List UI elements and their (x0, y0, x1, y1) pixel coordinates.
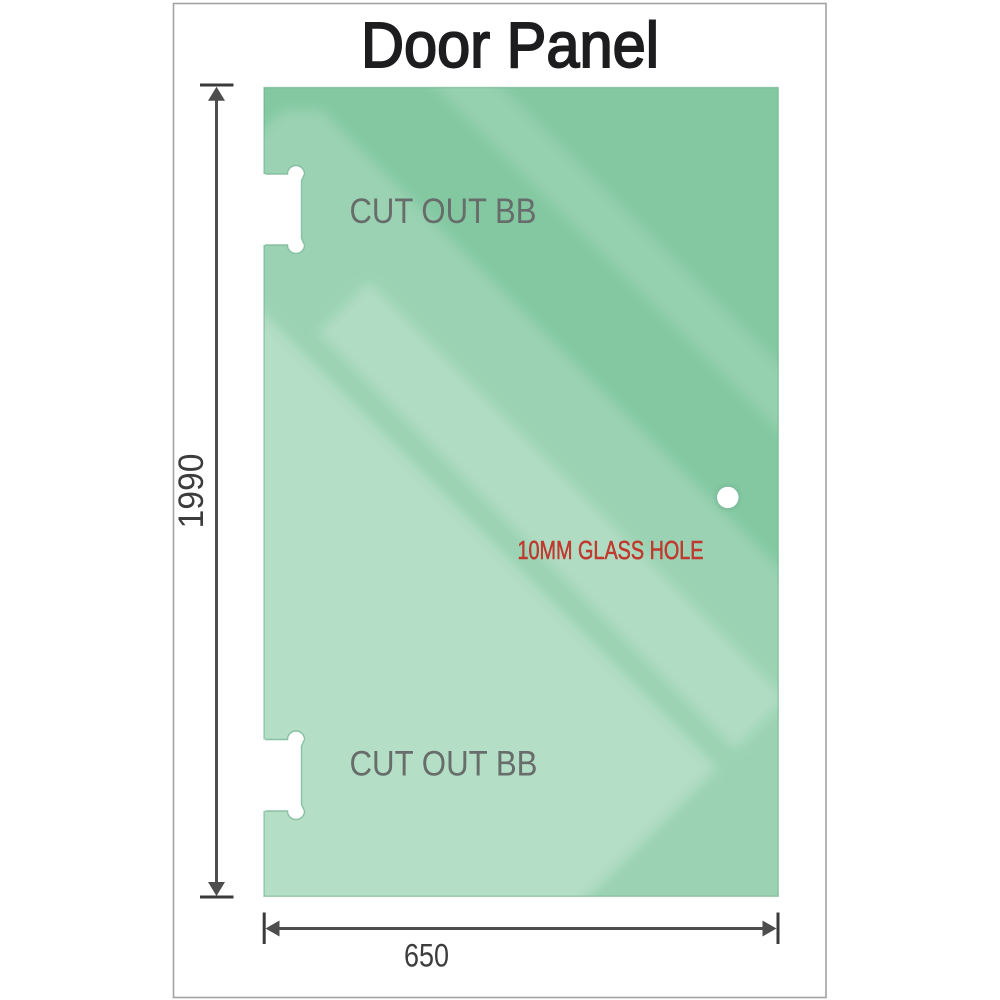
svg-text:CUT OUT BB: CUT OUT BB (350, 192, 537, 231)
svg-text:1990: 1990 (172, 454, 211, 529)
svg-text:CUT OUT BB: CUT OUT BB (350, 745, 538, 784)
svg-text:Door Panel: Door Panel (361, 9, 659, 81)
svg-text:10MM GLASS HOLE: 10MM GLASS HOLE (518, 537, 704, 565)
svg-text:650: 650 (404, 938, 449, 974)
